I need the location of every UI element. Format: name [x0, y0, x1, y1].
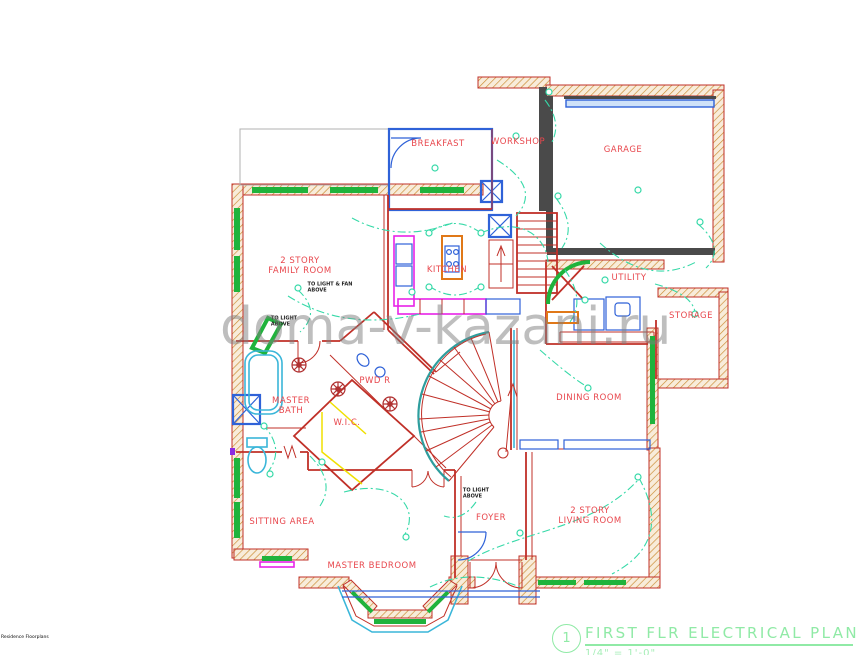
room-label-master-bedroom: MASTER BEDROOM: [327, 562, 416, 572]
fan-icon: [292, 358, 306, 372]
fan-icon: [331, 382, 345, 396]
watermark: doma-v-kazani.ru: [220, 297, 671, 357]
detail-number: 1: [562, 631, 570, 646]
title-underline: [585, 644, 853, 646]
annotation-to-light-above: TO LIGHT ABOVE: [463, 488, 489, 500]
garage-walls-layer: [539, 87, 716, 255]
drawing-title: FIRST FLR ELECTRICAL PLAN: [585, 624, 859, 642]
room-label-foyer: FOYER: [476, 514, 506, 524]
title-block: 1 FIRST FLR ELECTRICAL PLAN 1/4" = 1'-0": [552, 624, 859, 655]
room-label-sitting-area: SITTING AREA: [249, 518, 314, 528]
garage-door: [566, 100, 714, 107]
room-label-w-i-c: W.I.C.: [334, 419, 361, 429]
toilet: [248, 447, 266, 473]
room-label-2-story-family-room: 2 STORY FAMILY ROOM: [268, 257, 331, 277]
room-label-2-story-living-room: 2 STORY LIVING ROOM: [558, 507, 621, 527]
title-text-wrap: FIRST FLR ELECTRICAL PLAN 1/4" = 1'-0": [585, 624, 859, 655]
room-label-master-bath: MASTER BATH: [272, 397, 310, 417]
room-label-kitchen: KITCHEN: [427, 266, 467, 276]
electrical-plan-page: BREAKFASTWORKSHOPGARAGE2 STORY FAMILY RO…: [0, 0, 866, 655]
room-label-breakfast: BREAKFAST: [411, 140, 465, 150]
room-label-garage: GARAGE: [604, 146, 643, 156]
entry-double-doors: [470, 560, 522, 588]
room-label-storage: STORAGE: [669, 312, 713, 322]
footer-note: Residence Floorplans: [1, 635, 49, 640]
room-label-dining-room: DINING ROOM: [556, 394, 622, 404]
room-label-utility: UTILITY: [611, 274, 646, 284]
room-label-pwd-r: PWD R: [359, 377, 390, 387]
detail-number-circle: 1: [552, 624, 581, 653]
drawing-scale: 1/4" = 1'-0": [585, 648, 859, 655]
room-label-workshop: WORKSHOP: [491, 138, 545, 148]
annotation-to-light-fan-above: TO LIGHT & FAN ABOVE: [308, 282, 353, 294]
fan-icon: [383, 397, 397, 411]
